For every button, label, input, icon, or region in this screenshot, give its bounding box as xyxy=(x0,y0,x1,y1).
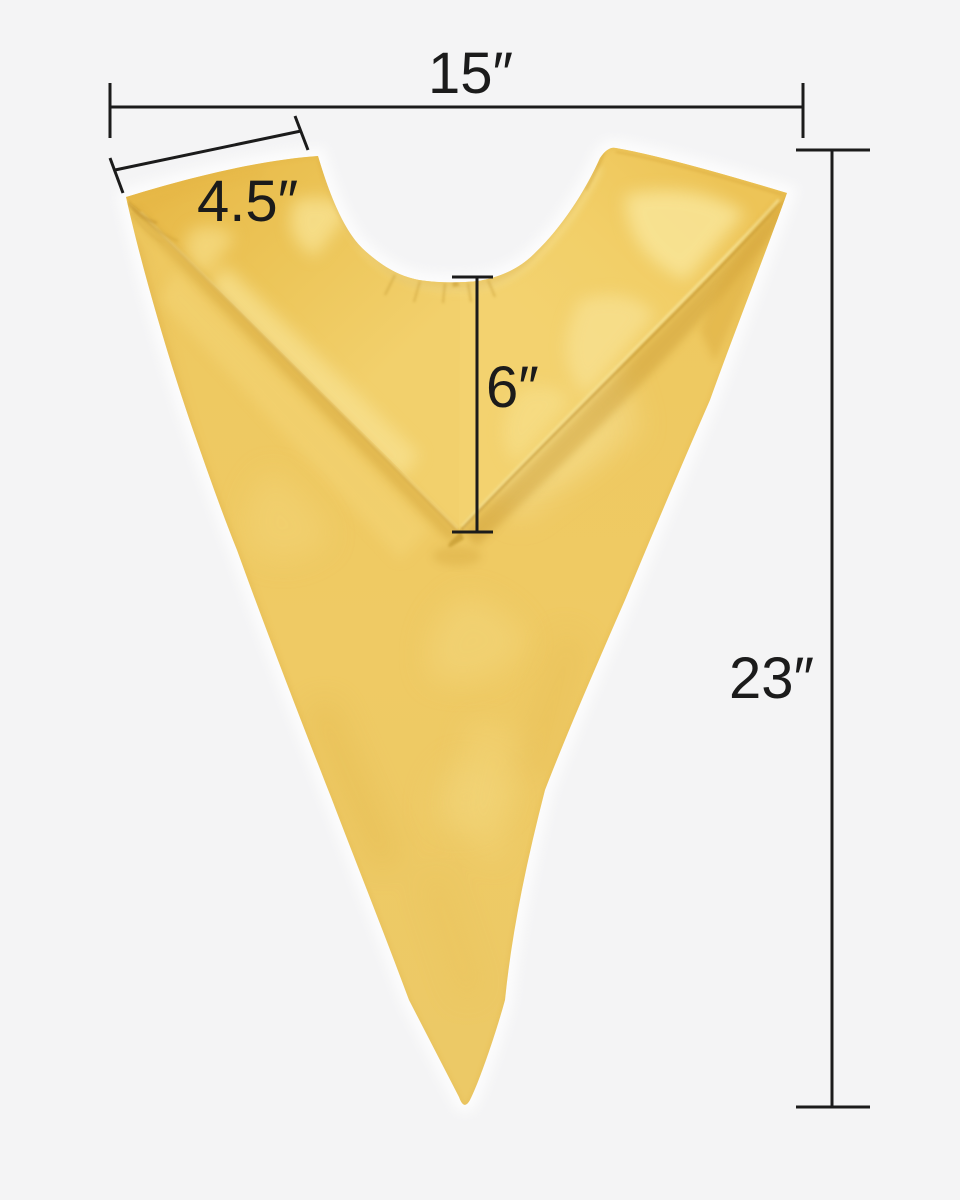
svg-text:4.5″: 4.5″ xyxy=(197,169,298,234)
svg-text:15″: 15″ xyxy=(428,41,513,106)
svg-text:23″: 23″ xyxy=(729,646,814,711)
svg-text:6″: 6″ xyxy=(486,355,539,420)
